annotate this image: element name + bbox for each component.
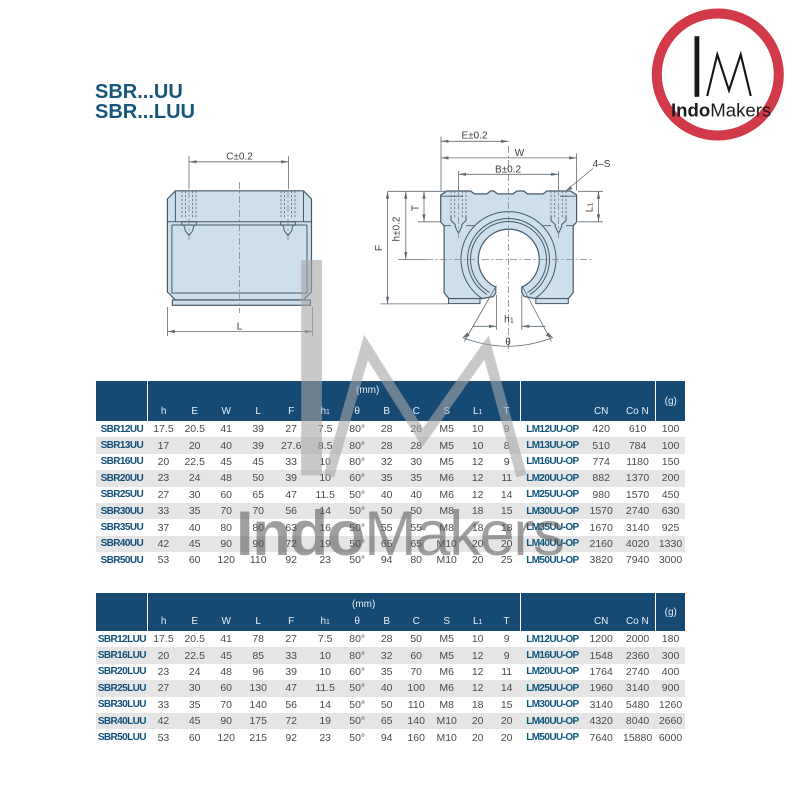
svg-text:h1: h1 xyxy=(504,315,514,326)
svg-text:h±0.2: h±0.2 xyxy=(392,216,403,241)
svg-text:C±0.2: C±0.2 xyxy=(226,152,253,163)
svg-text:L: L xyxy=(237,322,243,333)
svg-text:F: F xyxy=(374,245,385,251)
svg-text:θ: θ xyxy=(505,337,511,348)
svg-text:4–S: 4–S xyxy=(593,159,611,170)
svg-text:T: T xyxy=(411,205,422,211)
svg-text:B±0.2: B±0.2 xyxy=(495,165,521,176)
svg-text:IndoMakers: IndoMakers xyxy=(671,99,771,120)
svg-text:E±0.2: E±0.2 xyxy=(461,131,487,142)
svg-text:L1: L1 xyxy=(585,203,596,213)
svg-text:W: W xyxy=(515,148,525,159)
